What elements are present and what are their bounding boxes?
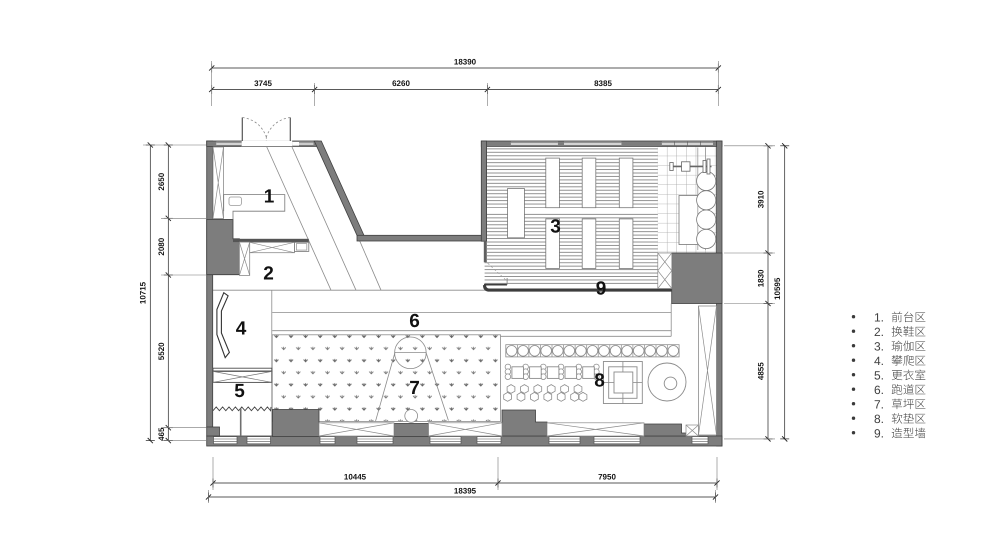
svg-text:5: 5: [234, 381, 245, 402]
svg-text:6: 6: [409, 311, 420, 332]
svg-text:5520: 5520: [157, 342, 166, 360]
svg-text:10445: 10445: [344, 473, 367, 482]
svg-text:2650: 2650: [157, 172, 166, 190]
svg-text:5.: 5.: [874, 368, 884, 382]
svg-text:18395: 18395: [454, 487, 477, 496]
svg-text:6260: 6260: [392, 79, 410, 88]
svg-text:3745: 3745: [254, 79, 272, 88]
svg-text:1: 1: [264, 186, 275, 207]
svg-text:9: 9: [596, 279, 607, 300]
svg-text:8.: 8.: [874, 412, 884, 426]
svg-text:10595: 10595: [773, 277, 782, 300]
svg-text:10715: 10715: [139, 281, 148, 304]
svg-text:2: 2: [263, 263, 274, 284]
svg-text:6.: 6.: [874, 383, 884, 397]
svg-text:7: 7: [409, 378, 420, 399]
svg-text:3.: 3.: [874, 339, 884, 353]
svg-text:4: 4: [236, 318, 247, 339]
svg-text:18390: 18390: [454, 58, 477, 67]
svg-text:465: 465: [157, 427, 166, 441]
svg-text:8: 8: [594, 370, 605, 391]
svg-text:7.: 7.: [874, 397, 884, 411]
svg-text:9.: 9.: [874, 426, 884, 440]
svg-text:1.: 1.: [874, 310, 884, 324]
svg-text:2080: 2080: [157, 237, 166, 255]
svg-text:4.: 4.: [874, 354, 884, 368]
svg-text:1830: 1830: [757, 269, 766, 287]
svg-text:4855: 4855: [757, 362, 766, 380]
svg-text:3910: 3910: [757, 190, 766, 208]
svg-text:2.: 2.: [874, 325, 884, 339]
svg-text:8385: 8385: [594, 79, 612, 88]
svg-text:3: 3: [550, 216, 561, 237]
svg-text:7950: 7950: [598, 473, 616, 482]
